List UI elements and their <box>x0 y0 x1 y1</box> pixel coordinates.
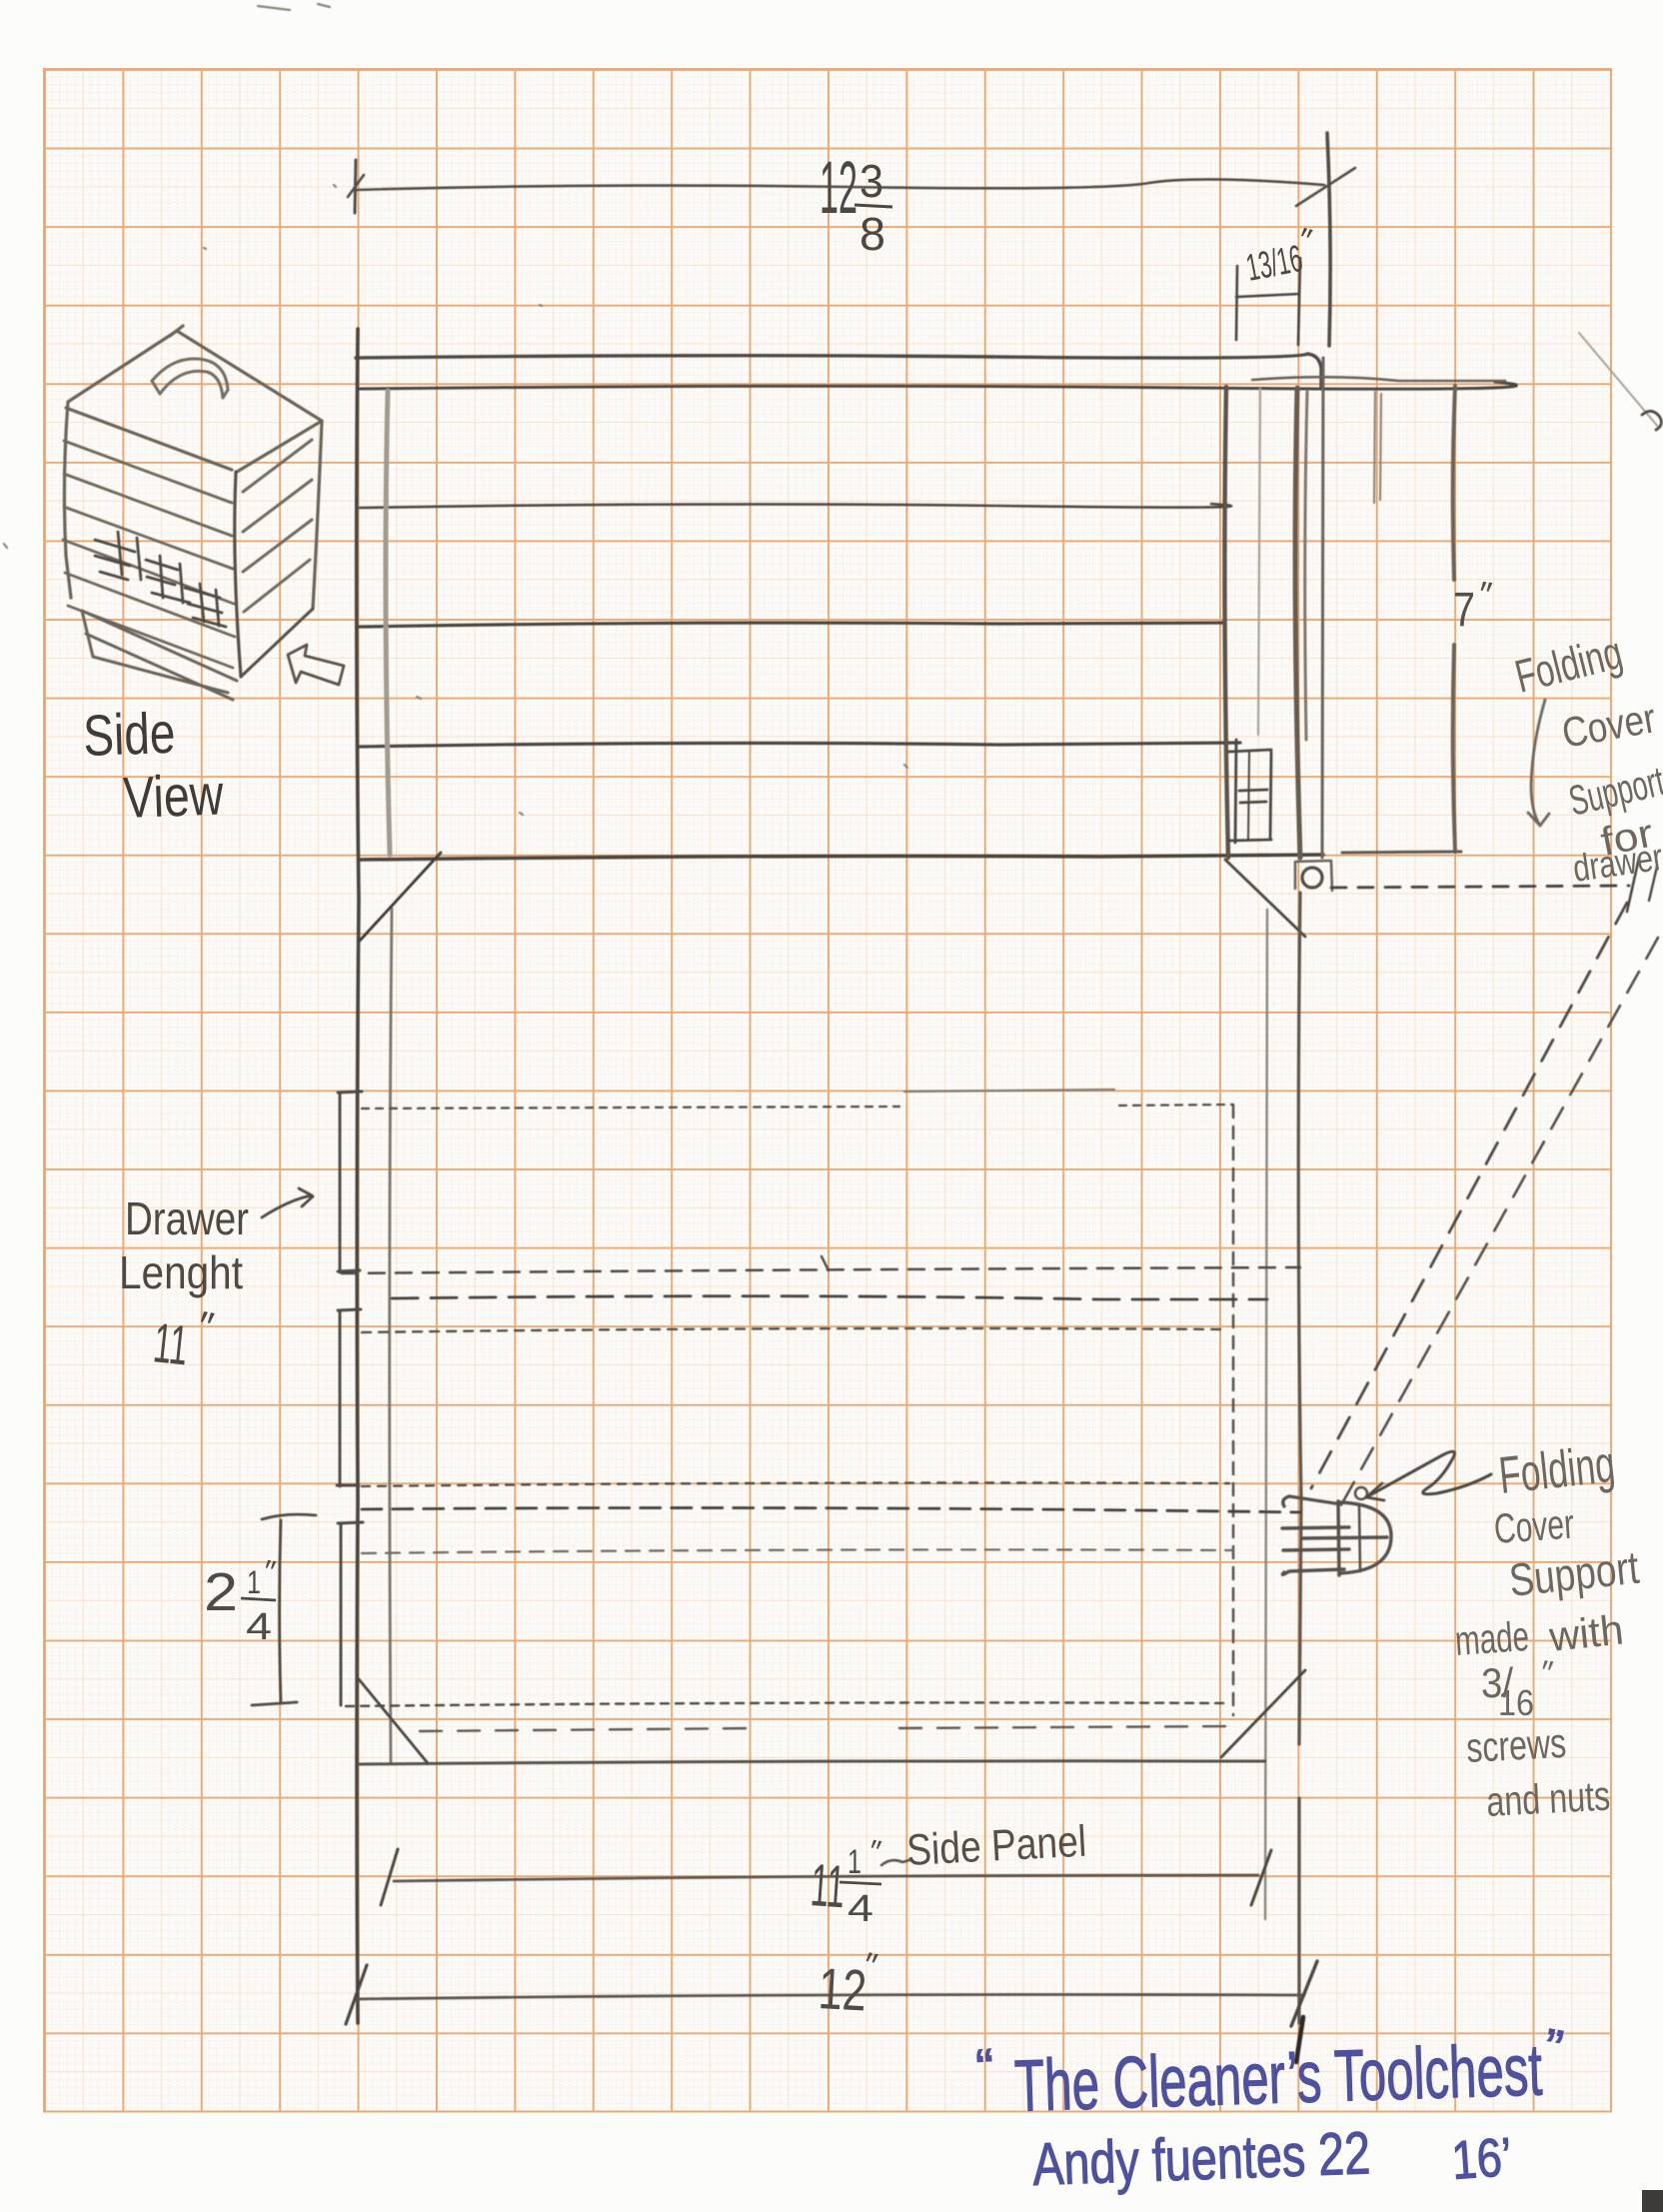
svg-text:2: 2 <box>204 1562 238 1622</box>
svg-text:Side Panel: Side Panel <box>905 1817 1087 1875</box>
svg-text:8: 8 <box>859 208 885 260</box>
svg-text:Lenght: Lenght <box>119 1246 243 1298</box>
svg-text:16’: 16’ <box>1450 2127 1514 2191</box>
svg-text:3: 3 <box>859 155 883 207</box>
svg-text:16: 16 <box>1498 1682 1534 1723</box>
svg-text:View: View <box>122 763 225 831</box>
svg-text:Side: Side <box>82 701 176 769</box>
svg-text:and nuts: and nuts <box>1485 1772 1611 1825</box>
svg-text:Folding: Folding <box>1496 1435 1617 1505</box>
svg-text:made: made <box>1453 1612 1530 1664</box>
svg-text:12: 12 <box>820 146 857 229</box>
svg-text:12: 12 <box>817 1956 867 2023</box>
svg-text:1: 1 <box>247 1564 261 1600</box>
svg-text:Cover: Cover <box>1492 1500 1575 1552</box>
svg-text:with: with <box>1546 1605 1625 1660</box>
svg-text:4: 4 <box>246 1606 272 1648</box>
svg-text:The Cleaner’s Toolchest: The Cleaner’s Toolchest <box>1013 2029 1543 2127</box>
svg-text:11: 11 <box>809 1851 847 1920</box>
svg-text:11: 11 <box>151 1310 191 1376</box>
svg-text:1: 1 <box>847 1843 861 1881</box>
svg-text:4: 4 <box>847 1888 873 1930</box>
svg-text:screws: screws <box>1465 1719 1567 1771</box>
svg-text:Drawer: Drawer <box>125 1192 249 1244</box>
svg-text:Andy fuentes 22: Andy fuentes 22 <box>1031 2119 1371 2198</box>
svg-text:7: 7 <box>1453 584 1475 637</box>
